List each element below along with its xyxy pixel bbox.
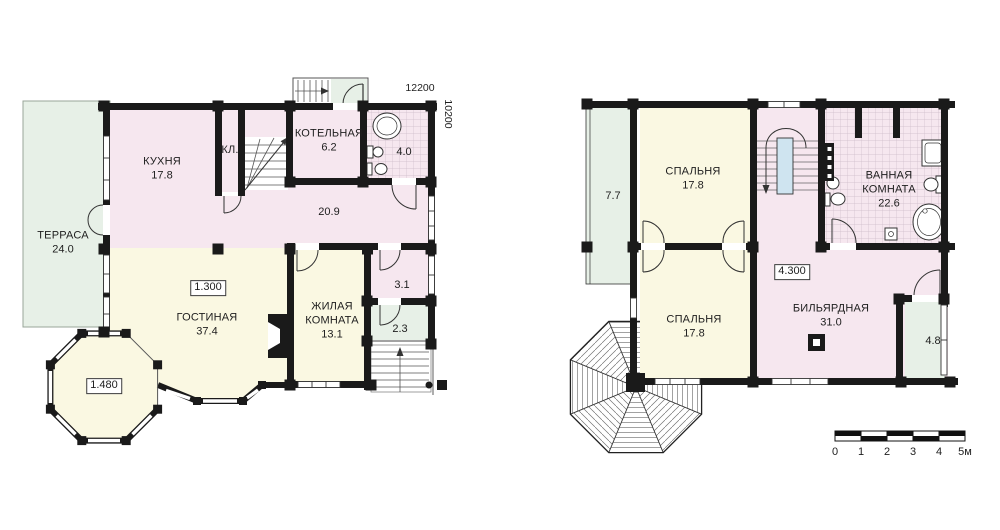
room-label-boiler: КОТЕЛЬНАЯ 6.2 (295, 127, 363, 155)
room-label-bathroom: ВАННАЯ КОМНАТА 22.6 (855, 169, 923, 210)
plans-linework (0, 0, 1000, 530)
room-name: ТЕРРАСА (37, 229, 89, 243)
room-area: 31.0 (793, 316, 869, 330)
terrace-area (23, 101, 110, 327)
room-label-balcony: 7.7 (605, 190, 620, 204)
scale-label-5: 5м (958, 446, 972, 458)
room-label-living: ГОСТИНАЯ 37.4 (177, 311, 238, 339)
dimension-depth: 10200 (442, 99, 454, 128)
room-area: 20.9 (318, 206, 339, 220)
elevation-mark-second: 4.300 (774, 264, 810, 280)
room-name: БИЛЬЯРДНАЯ (793, 302, 869, 316)
room-name: СПАЛЬНЯ (665, 165, 720, 179)
room-name: ЖИЛАЯ КОМНАТА (296, 300, 368, 328)
room-name: КОТЕЛЬНАЯ (295, 127, 363, 141)
floor-plans-canvas: ТЕРРАСА 24.0 КУХНЯ 17.8 КЛ. КОТЕЛЬНАЯ 6.… (0, 0, 1000, 530)
entrance-porch (293, 78, 368, 104)
room-label-bedroom-top: СПАЛЬНЯ 17.8 (665, 165, 720, 193)
room-name: КУХНЯ (143, 155, 181, 169)
fireplace-icon (268, 314, 288, 358)
room-area: 2.3 (392, 323, 407, 337)
radiator-icon (825, 143, 834, 181)
sink-icon (367, 146, 373, 158)
floor-plan-second-floor (570, 99, 958, 453)
scale-label-1: 1 (858, 446, 864, 458)
room-label-bedroom-first: ЖИЛАЯ КОМНАТА 13.1 (296, 300, 368, 341)
room-name: СПАЛЬНЯ (666, 313, 721, 327)
chimney-icon (808, 334, 825, 351)
room-area: 4.0 (396, 146, 411, 160)
room-label-bath: 4.0 (396, 146, 411, 160)
scale-label-4: 4 (936, 446, 942, 458)
room-area: 4.8 (925, 335, 940, 349)
room-label-lobby: 3.1 (394, 279, 409, 293)
toilet-icon (367, 163, 372, 175)
stair-well (777, 138, 793, 194)
room-name: ГОСТИНАЯ (177, 311, 238, 325)
room-label-entry: 2.3 (392, 323, 407, 337)
scale-label-0: 0 (832, 446, 838, 458)
room-area: 3.1 (394, 279, 409, 293)
room-label-terrace: ТЕРРАСА 24.0 (37, 229, 89, 257)
elevation-mark-bay: 1.480 (86, 378, 122, 394)
room-area: 13.1 (296, 328, 368, 342)
scale-label-3: 3 (910, 446, 916, 458)
room-area: 7.7 (605, 190, 620, 204)
room-label-closet: КЛ. (221, 144, 238, 158)
room-name: КЛ. (221, 144, 238, 158)
room-area: 17.8 (666, 327, 721, 341)
room-name: ВАННАЯ КОМНАТА (855, 169, 923, 197)
room-label-balcony-small: 4.8 (925, 335, 940, 349)
scale-bar (835, 431, 965, 441)
room-area: 24.0 (37, 243, 89, 257)
room-label-hall: 20.9 (318, 206, 339, 220)
elevation-mark-living: 1.300 (190, 280, 226, 296)
dimension-width: 12200 (405, 82, 434, 94)
room-area: 22.6 (855, 197, 923, 211)
room-label-kitchen: КУХНЯ 17.8 (143, 155, 181, 183)
room-area: 17.8 (143, 169, 181, 183)
room-area: 37.4 (177, 325, 238, 339)
room-area: 17.8 (665, 179, 720, 193)
room-area: 6.2 (295, 141, 363, 155)
scale-label-2: 2 (884, 446, 890, 458)
room-label-billiard: БИЛЬЯРДНАЯ 31.0 (793, 302, 869, 330)
room-label-bedroom-bottom: СПАЛЬНЯ 17.8 (666, 313, 721, 341)
